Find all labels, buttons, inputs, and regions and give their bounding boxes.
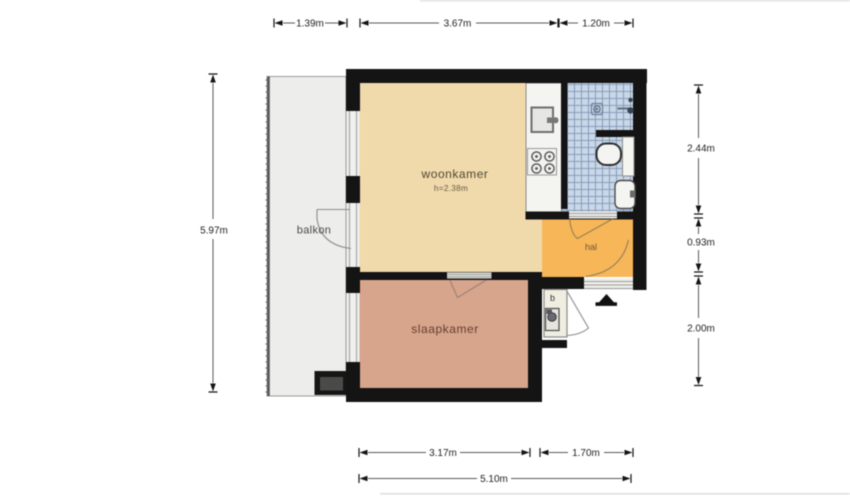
svg-text:5.97m: 5.97m <box>200 226 228 237</box>
svg-text:1.20m: 1.20m <box>582 19 610 30</box>
svg-text:3.17m: 3.17m <box>429 448 457 459</box>
svg-text:1.39m: 1.39m <box>296 19 324 30</box>
svg-text:2.00m: 2.00m <box>687 324 715 335</box>
svg-text:2.44m: 2.44m <box>687 144 715 155</box>
svg-text:5.10m: 5.10m <box>480 474 508 485</box>
svg-text:1.70m: 1.70m <box>572 448 600 459</box>
svg-text:0.93m: 0.93m <box>687 238 715 249</box>
svg-text:3.67m: 3.67m <box>444 19 472 30</box>
svg-text:slaapkamer: slaapkamer <box>411 322 479 336</box>
svg-text:b: b <box>550 293 555 303</box>
svg-text:hal: hal <box>585 242 597 252</box>
svg-text:woonkamer: woonkamer <box>421 167 489 181</box>
svg-text:balkon: balkon <box>297 225 332 237</box>
svg-text:h=2.38m: h=2.38m <box>434 184 468 193</box>
